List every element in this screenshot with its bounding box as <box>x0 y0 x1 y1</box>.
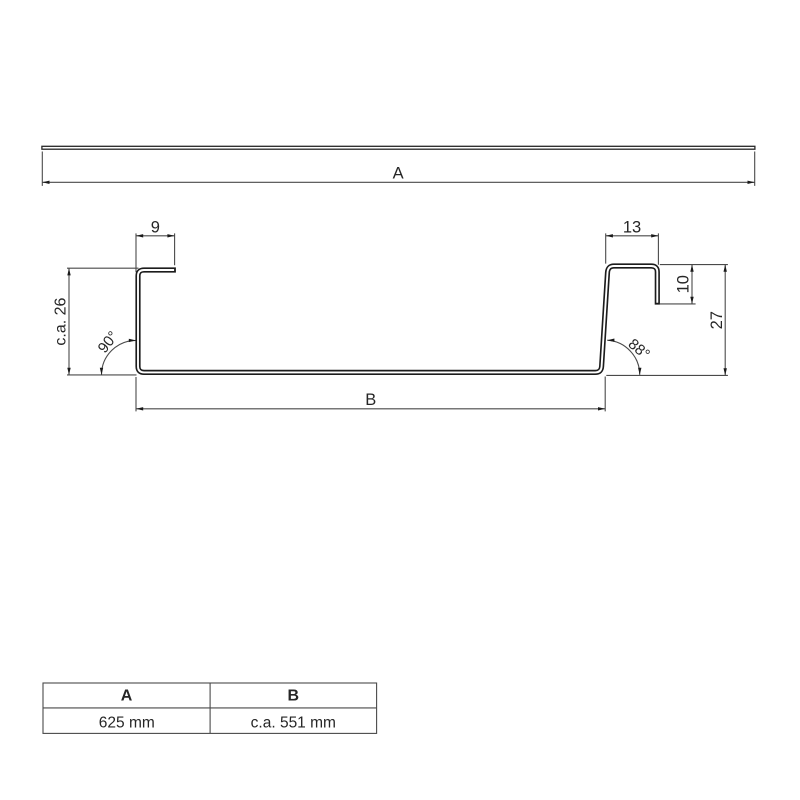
svg-text:B: B <box>365 391 376 409</box>
svg-text:10: 10 <box>675 275 693 293</box>
svg-text:B: B <box>288 688 300 705</box>
svg-text:90°: 90° <box>95 328 122 356</box>
svg-text:27: 27 <box>708 311 726 329</box>
svg-text:9: 9 <box>151 218 160 236</box>
svg-text:88°: 88° <box>625 336 653 364</box>
svg-text:c.a. 551 mm: c.a. 551 mm <box>251 715 336 732</box>
svg-text:c.a. 26: c.a. 26 <box>53 297 70 345</box>
svg-text:A: A <box>121 688 133 705</box>
svg-text:13: 13 <box>623 218 641 236</box>
svg-text:A: A <box>393 165 404 183</box>
svg-text:625 mm: 625 mm <box>99 715 155 732</box>
